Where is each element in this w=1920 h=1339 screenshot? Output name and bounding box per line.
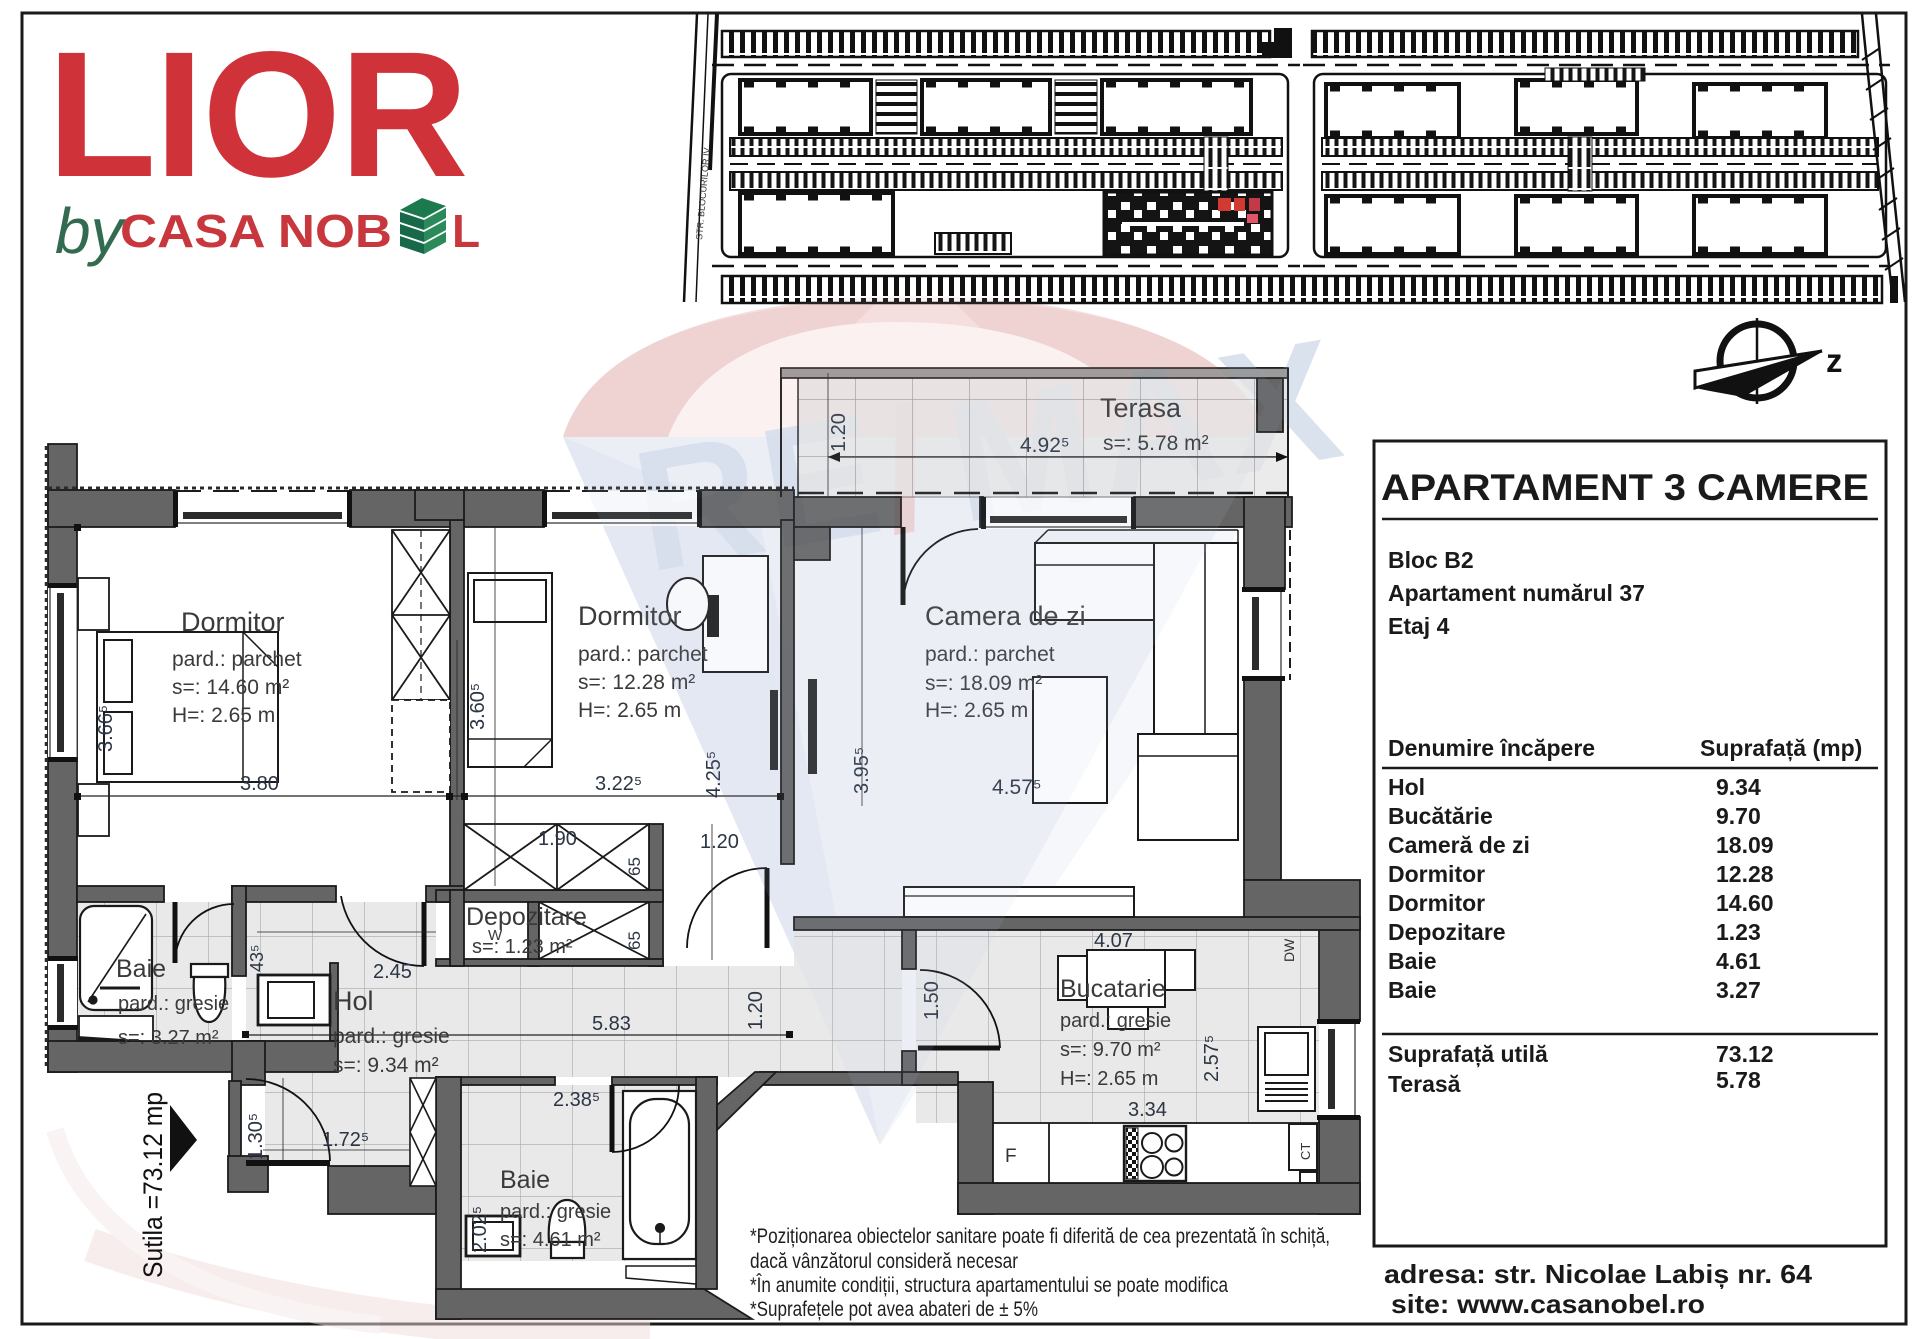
svg-text:*Poziționarea obiectelor sanit: *Poziționarea obiectelor sanitare poate … (750, 1225, 1330, 1248)
svg-text:1.20: 1.20 (828, 413, 850, 452)
svg-text:H=: 2.65 m: H=: 2.65 m (172, 704, 275, 727)
svg-text:Baie: Baie (1388, 948, 1437, 974)
svg-text:Baie: Baie (116, 955, 166, 983)
svg-text:3.80: 3.80 (240, 773, 279, 795)
svg-text:Dormitor: Dormitor (1388, 890, 1485, 916)
svg-text:LIOR: LIOR (47, 14, 467, 214)
svg-text:by: by (55, 195, 127, 267)
svg-text:APARTAMENT 3 CAMERE: APARTAMENT 3 CAMERE (1381, 467, 1869, 508)
svg-text:4.07: 4.07 (1094, 930, 1133, 952)
svg-text:H=: 2.65 m: H=: 2.65 m (1060, 1068, 1158, 1090)
svg-text:4.25⁵: 4.25⁵ (703, 751, 725, 798)
svg-text:3.27: 3.27 (1716, 977, 1761, 1003)
svg-text:Camera de zi: Camera de zi (925, 601, 1086, 631)
svg-text:Denumire încăpere: Denumire încăpere (1388, 735, 1595, 761)
svg-text:pard.: gresie: pard.: gresie (333, 1025, 450, 1048)
svg-text:Sutila =73.12 mp: Sutila =73.12 mp (138, 1092, 168, 1278)
svg-text:3.34: 3.34 (1128, 1099, 1167, 1121)
svg-text:adresa: str. Nicolae Labiș nr.: adresa: str. Nicolae Labiș nr. 64 (1384, 1259, 1813, 1289)
svg-text:*Suprafețele pot avea abateri: *Suprafețele pot avea abateri de ± 5% (750, 1298, 1038, 1321)
svg-text:s=: 18.09 m²: s=: 18.09 m² (925, 672, 1042, 695)
svg-text:4.92⁵: 4.92⁵ (1020, 434, 1070, 457)
svg-text:14.60: 14.60 (1716, 890, 1774, 916)
svg-text:2.02⁵: 2.02⁵ (469, 1206, 491, 1253)
svg-text:1.20: 1.20 (700, 831, 739, 853)
svg-text:3.22⁵: 3.22⁵ (595, 773, 642, 795)
svg-text:1.20: 1.20 (745, 991, 767, 1030)
svg-text:L: L (452, 205, 480, 257)
svg-text:Dormitor: Dormitor (578, 601, 682, 631)
svg-text:73.12: 73.12 (1716, 1041, 1774, 1067)
svg-text:1.30⁵: 1.30⁵ (245, 1113, 267, 1160)
svg-text:2.45: 2.45 (373, 961, 412, 983)
svg-text:12.28: 12.28 (1716, 861, 1774, 887)
svg-text:Hol: Hol (1388, 774, 1425, 800)
svg-text:Suprafață (mp): Suprafață (mp) (1700, 735, 1862, 762)
svg-text:3.95⁵: 3.95⁵ (851, 747, 873, 794)
svg-text:Baie: Baie (500, 1166, 550, 1194)
svg-text:Depozitare: Depozitare (1388, 919, 1506, 945)
svg-text:*În anumite condiții, structur: *În anumite condiții, structura apartame… (750, 1274, 1228, 1297)
svg-text:pard.: gresie: pard.: gresie (1060, 1010, 1171, 1032)
svg-text:Terasă: Terasă (1388, 1071, 1461, 1097)
svg-text:Bloc B2: Bloc B2 (1388, 547, 1474, 573)
svg-text:pard.: parchet: pard.: parchet (925, 643, 1055, 666)
svg-text:s=: 12.28 m²: s=: 12.28 m² (578, 671, 695, 694)
svg-text:Bucatarie: Bucatarie (1060, 975, 1166, 1003)
svg-text:dacă vânzătorul consideră nece: dacă vânzătorul consideră necesar (750, 1250, 1018, 1273)
svg-text:z: z (1826, 342, 1843, 379)
svg-text:CASA NOB: CASA NOB (120, 205, 392, 257)
svg-text:H=: 2.65 m: H=: 2.65 m (578, 699, 681, 722)
svg-text:Etaj 4: Etaj 4 (1388, 613, 1450, 639)
svg-text:Cameră de zi: Cameră de zi (1388, 832, 1530, 858)
svg-text:3.66⁵: 3.66⁵ (95, 705, 117, 752)
svg-text:Baie: Baie (1388, 977, 1437, 1003)
svg-text:Depozitare: Depozitare (466, 903, 587, 931)
svg-text:Bucătărie: Bucătărie (1388, 803, 1493, 829)
svg-text:s=: 4.61 m²: s=: 4.61 m² (500, 1229, 601, 1251)
svg-text:5.83: 5.83 (592, 1013, 631, 1035)
svg-text:1.23: 1.23 (1716, 919, 1761, 945)
svg-text:W: W (488, 927, 503, 944)
svg-text:5.78: 5.78 (1716, 1067, 1761, 1093)
svg-text:DW: DW (1281, 938, 1297, 962)
svg-text:s=: 14.60 m²: s=: 14.60 m² (172, 676, 289, 699)
svg-text:1.90: 1.90 (538, 828, 577, 850)
svg-text:Dormitor: Dormitor (181, 607, 285, 637)
svg-text:1.50: 1.50 (921, 981, 943, 1020)
svg-text:4.61: 4.61 (1716, 948, 1761, 974)
svg-text:3.60⁵: 3.60⁵ (467, 683, 489, 730)
svg-text:pard.: parchet: pard.: parchet (172, 648, 302, 671)
svg-text:H=: 2.65 m: H=: 2.65 m (925, 699, 1028, 722)
svg-text:Hol: Hol (333, 986, 374, 1016)
svg-text:9.34: 9.34 (1716, 774, 1761, 800)
svg-text:s=: 3.27 m²: s=: 3.27 m² (118, 1027, 219, 1049)
svg-text:pard.: parchet: pard.: parchet (578, 643, 708, 666)
svg-text:s=: 5.78 m²: s=: 5.78 m² (1103, 432, 1209, 455)
svg-text:F: F (1005, 1146, 1017, 1167)
svg-text:pard.: gresie: pard.: gresie (118, 993, 229, 1015)
svg-text:pard.: gresie: pard.: gresie (500, 1201, 611, 1223)
svg-text:Suprafață utilă: Suprafață utilă (1388, 1041, 1548, 1068)
svg-text:Apartament numărul 37: Apartament numărul 37 (1388, 580, 1645, 606)
svg-text:65: 65 (625, 931, 644, 950)
svg-text:2.57⁵: 2.57⁵ (1201, 1035, 1223, 1082)
svg-text:s=: 9.34 m²: s=: 9.34 m² (333, 1054, 439, 1077)
svg-text:9.70: 9.70 (1716, 803, 1761, 829)
svg-text:43⁵: 43⁵ (247, 945, 267, 972)
svg-text:18.09: 18.09 (1716, 832, 1774, 858)
svg-text:2.38⁵: 2.38⁵ (553, 1089, 600, 1111)
svg-text:Terasa: Terasa (1100, 393, 1182, 423)
svg-text:CT: CT (1298, 1143, 1313, 1160)
svg-text:site: www.casanobel.ro: site: www.casanobel.ro (1391, 1289, 1705, 1319)
svg-text:65: 65 (625, 857, 644, 876)
svg-text:4.57⁵: 4.57⁵ (992, 776, 1042, 799)
svg-text:Dormitor: Dormitor (1388, 861, 1485, 887)
svg-text:s=: 9.70 m²: s=: 9.70 m² (1060, 1039, 1161, 1061)
svg-text:1.72⁵: 1.72⁵ (322, 1129, 369, 1151)
